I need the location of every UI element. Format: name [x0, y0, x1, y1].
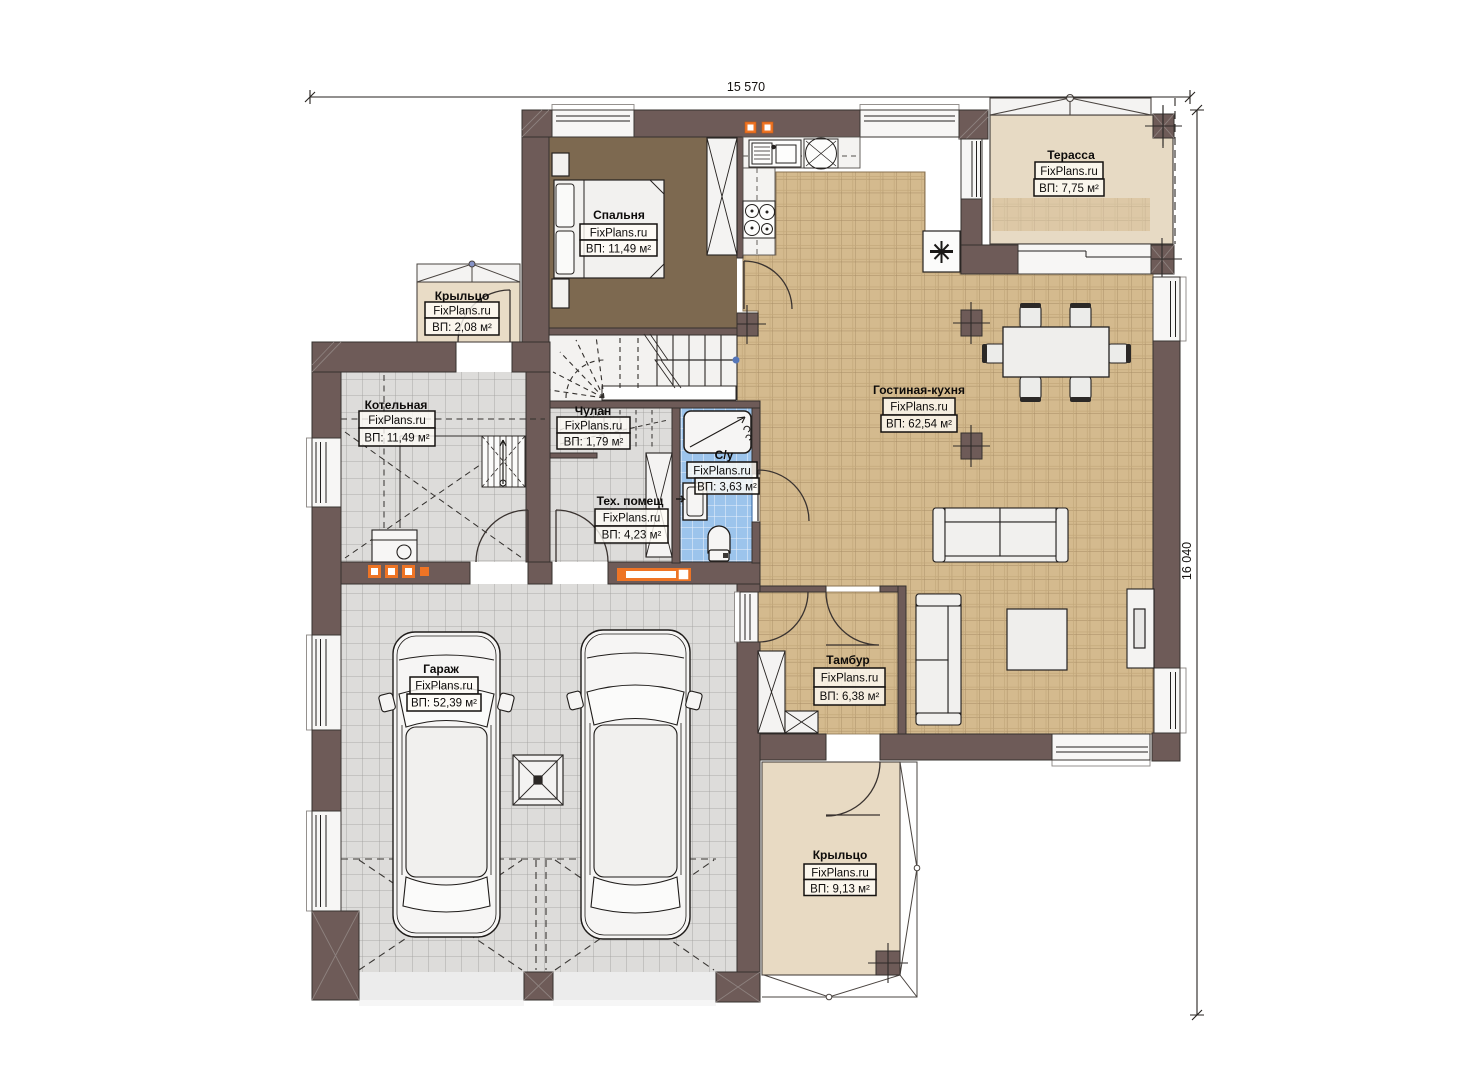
svg-text:FixPlans.ru: FixPlans.ru: [565, 421, 623, 433]
svg-text:ВП: 11,49 м²: ВП: 11,49 м²: [364, 433, 429, 445]
svg-text:16 040: 16 040: [1180, 542, 1194, 580]
svg-text:ВП: 62,54 м²: ВП: 62,54 м²: [886, 419, 952, 431]
svg-text:ВП: 3,63 м²: ВП: 3,63 м²: [697, 482, 757, 494]
svg-text:ВП: 7,75 м²: ВП: 7,75 м²: [1039, 183, 1099, 195]
svg-text:Спальня: Спальня: [593, 208, 645, 222]
svg-text:FixPlans.ru: FixPlans.ru: [415, 681, 473, 693]
svg-text:С/у: С/у: [715, 448, 734, 462]
svg-text:Тех. помещ: Тех. помещ: [597, 494, 665, 508]
svg-text:Котельная: Котельная: [365, 398, 428, 412]
svg-text:15 570: 15 570: [727, 80, 765, 94]
svg-text:FixPlans.ru: FixPlans.ru: [811, 868, 869, 880]
svg-text:Терасса: Терасса: [1047, 148, 1095, 162]
svg-text:ВП: 1,79 м²: ВП: 1,79 м²: [564, 437, 624, 449]
svg-text:ВП: 52,39 м²: ВП: 52,39 м²: [411, 698, 477, 710]
svg-text:FixPlans.ru: FixPlans.ru: [1040, 166, 1098, 178]
svg-text:FixPlans.ru: FixPlans.ru: [890, 402, 948, 414]
svg-text:ВП: 2,08 м²: ВП: 2,08 м²: [432, 322, 492, 334]
svg-text:FixPlans.ru: FixPlans.ru: [821, 673, 879, 685]
svg-text:ВП: 4,23 м²: ВП: 4,23 м²: [602, 530, 662, 542]
svg-text:ВП: 9,13 м²: ВП: 9,13 м²: [810, 884, 870, 896]
svg-text:FixPlans.ru: FixPlans.ru: [433, 306, 491, 318]
svg-text:Тамбур: Тамбур: [826, 653, 870, 667]
svg-text:FixPlans.ru: FixPlans.ru: [368, 415, 426, 427]
svg-text:Гараж: Гараж: [423, 662, 459, 676]
svg-text:ВП: 6,38 м²: ВП: 6,38 м²: [820, 691, 880, 703]
svg-text:FixPlans.ru: FixPlans.ru: [603, 513, 661, 525]
svg-text:FixPlans.ru: FixPlans.ru: [590, 228, 648, 240]
svg-text:Гостиная-кухня: Гостиная-кухня: [873, 383, 965, 397]
svg-text:Крыльцо: Крыльцо: [435, 289, 490, 303]
svg-text:Чулан: Чулан: [575, 404, 612, 418]
svg-text:Крыльцо: Крыльцо: [813, 848, 868, 862]
svg-text:ВП: 11,49 м²: ВП: 11,49 м²: [586, 244, 651, 256]
svg-text:FixPlans.ru: FixPlans.ru: [693, 466, 751, 478]
